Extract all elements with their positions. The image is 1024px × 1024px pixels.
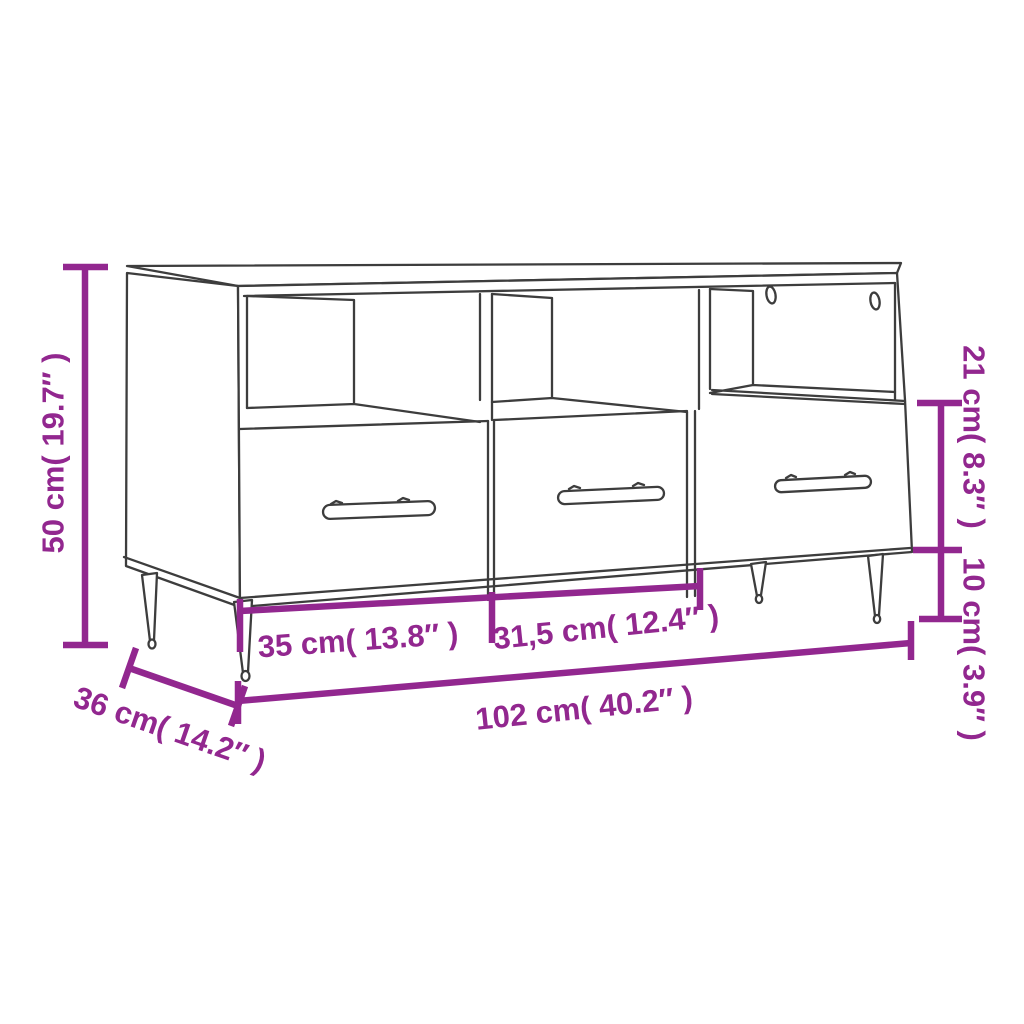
total-width-label: 102 cm( 40.2″ ) bbox=[474, 679, 695, 737]
cabinet-left-panel bbox=[126, 273, 240, 607]
side-height-dimension: 21 cm( 8.3″ ) 10 cm( 3.9″ ) bbox=[913, 345, 992, 741]
height-dimension-label: 50 cm( 19.7″ ) bbox=[36, 353, 71, 554]
leg-back-left-foot bbox=[149, 640, 156, 649]
left-drawer-width-label: 35 cm( 13.8″ ) bbox=[257, 616, 460, 665]
drawer-1-handle bbox=[323, 501, 435, 519]
product-dimension-image: 50 cm( 19.7″ ) 36 cm( 14.2″ ) 35 cm( 13.… bbox=[0, 0, 1024, 1024]
leg-front-left-foot bbox=[242, 671, 250, 681]
leg-back-right bbox=[751, 562, 766, 596]
leg-back-left bbox=[142, 573, 157, 641]
depth-dimension-line bbox=[129, 668, 238, 706]
dimension-diagram-svg: 50 cm( 19.7″ ) 36 cm( 14.2″ ) 35 cm( 13.… bbox=[0, 0, 1024, 1024]
leg-front-right-foot bbox=[874, 615, 880, 623]
side-height-dimension-ticks bbox=[913, 403, 962, 619]
cabinet-front bbox=[238, 273, 912, 607]
leg-back-right-foot bbox=[756, 595, 762, 603]
top-section-height-label: 21 cm( 8.3″ ) bbox=[957, 345, 992, 529]
right-drawer-width-label: 31,5 cm( 12.4″ ) bbox=[491, 598, 720, 657]
leg-front-right bbox=[868, 554, 883, 616]
height-dimension: 50 cm( 19.7″ ) bbox=[36, 267, 109, 645]
leg-height-label: 10 cm( 3.9″ ) bbox=[957, 557, 992, 741]
